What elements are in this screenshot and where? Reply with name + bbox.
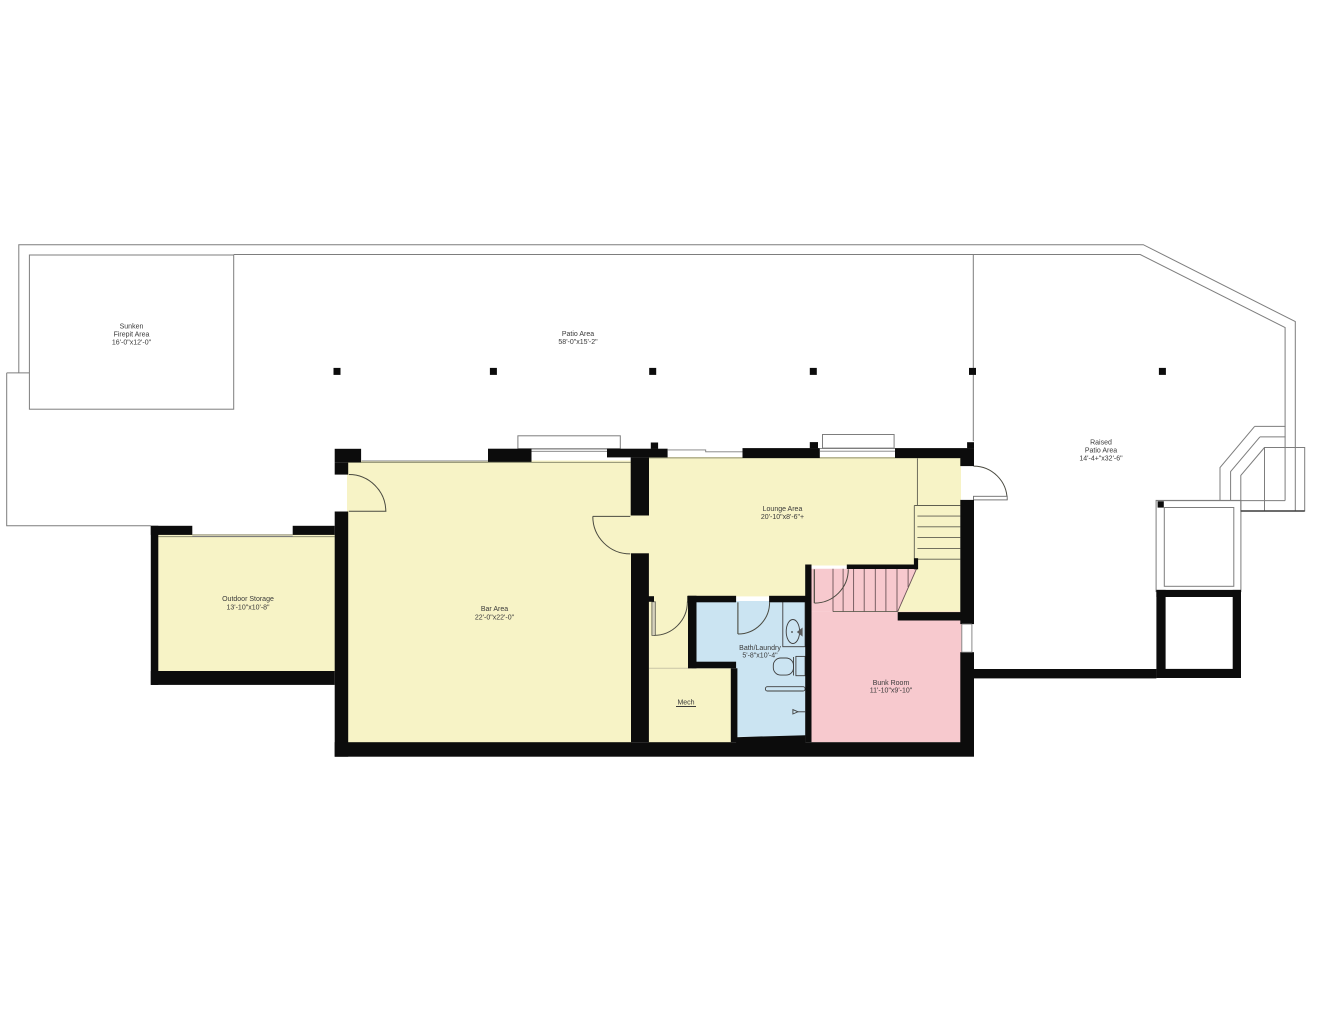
svg-text:20'-10"x8'-6"+: 20'-10"x8'-6"+ — [761, 514, 804, 521]
svg-text:58'-0"x15'-2": 58'-0"x15'-2" — [558, 339, 598, 346]
svg-text:13'-10"x10'-8": 13'-10"x10'-8" — [226, 605, 270, 612]
svg-text:Patio Area: Patio Area — [1085, 448, 1117, 455]
svg-text:Mech: Mech — [677, 700, 694, 707]
svg-text:Bunk Room: Bunk Room — [873, 680, 910, 687]
svg-text:5'-8"x10'-4": 5'-8"x10'-4" — [742, 653, 778, 660]
svg-text:Bar Area: Bar Area — [481, 606, 508, 613]
svg-text:Raised: Raised — [1090, 440, 1112, 447]
svg-text:Bath/Laundry: Bath/Laundry — [739, 645, 781, 652]
svg-text:Firepit Area: Firepit Area — [114, 332, 150, 339]
svg-text:14'-4+"x32'-6": 14'-4+"x32'-6" — [1079, 456, 1123, 463]
svg-text:16'-0"x12'-0": 16'-0"x12'-0" — [112, 340, 152, 347]
svg-text:22'-0"x22'-0": 22'-0"x22'-0" — [475, 615, 515, 622]
svg-text:Outdoor Storage: Outdoor Storage — [222, 596, 274, 603]
svg-text:Lounge Area: Lounge Area — [763, 506, 803, 513]
svg-text:Sunken: Sunken — [120, 324, 144, 331]
svg-text:Patio Area: Patio Area — [562, 331, 594, 338]
svg-text:11'-10"x9'-10": 11'-10"x9'-10" — [870, 688, 913, 695]
